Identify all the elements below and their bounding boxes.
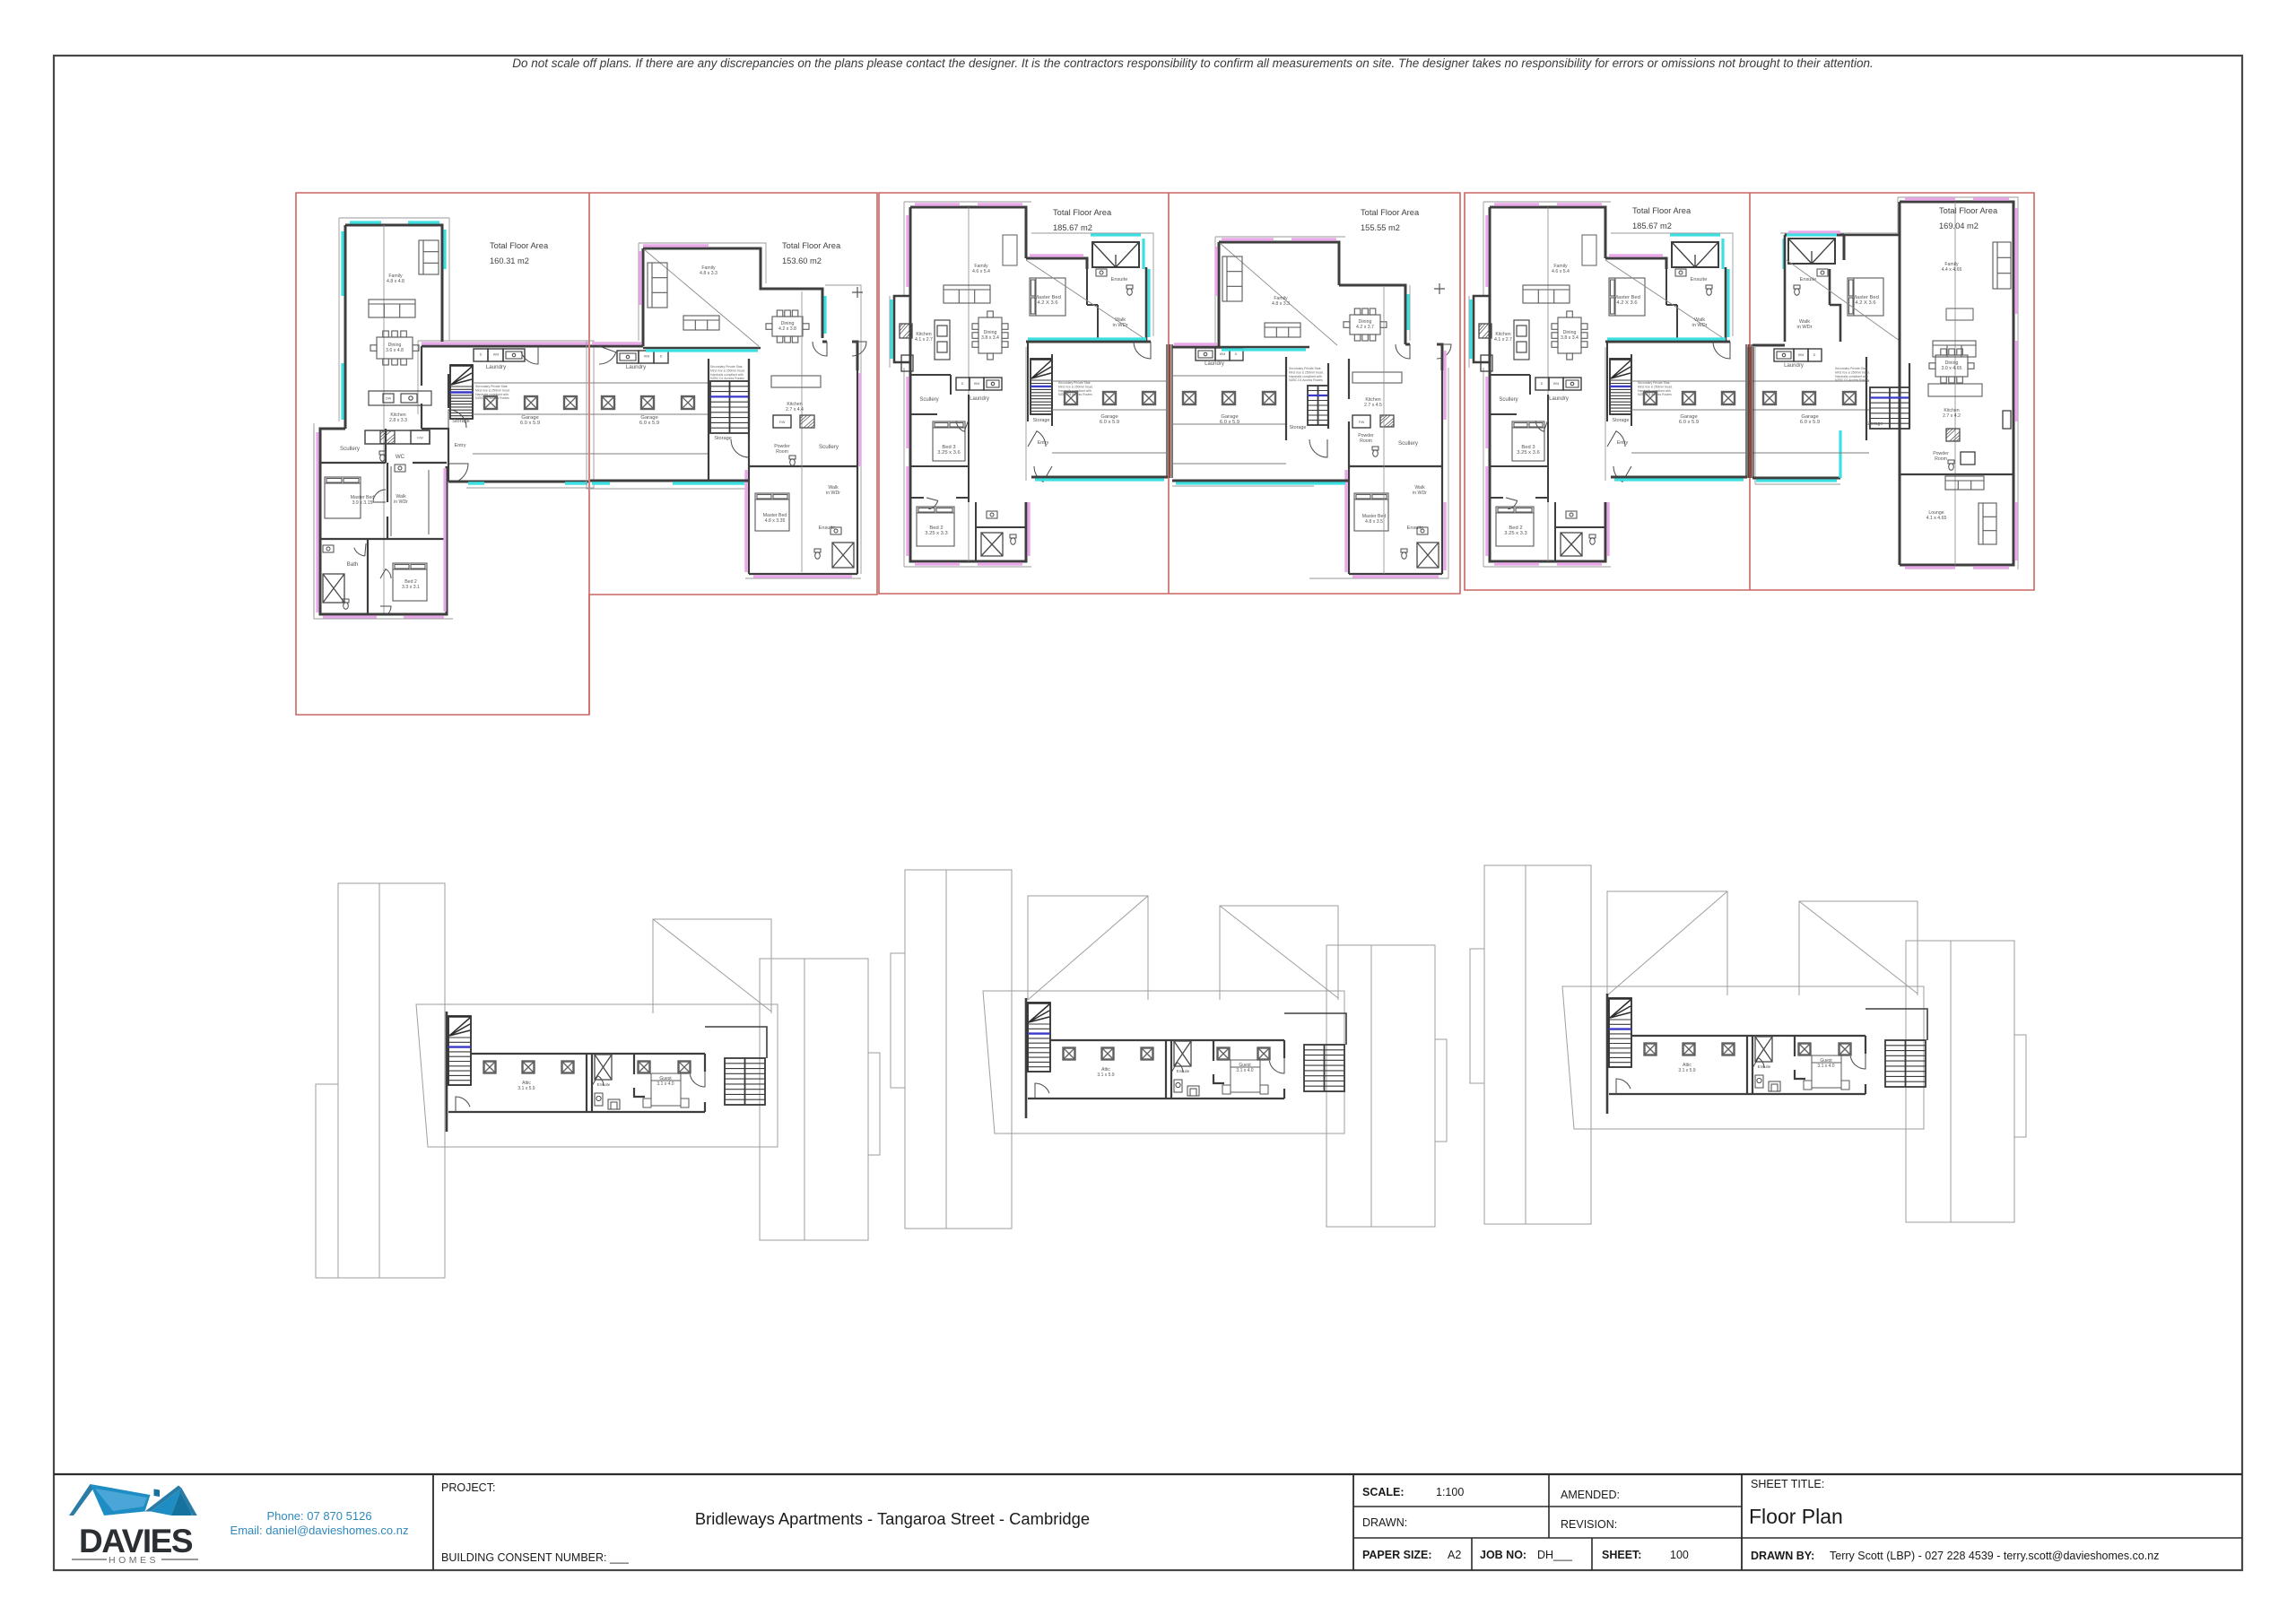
svg-text:6.0 x 5.9: 6.0 x 5.9 (639, 421, 659, 426)
svg-text:Ensuite: Ensuite (1111, 277, 1128, 282)
svg-text:PROJECT:: PROJECT: (441, 1481, 495, 1494)
svg-text:Kitchen: Kitchen (390, 413, 405, 418)
svg-text:3.1 x 5.9: 3.1 x 5.9 (517, 1086, 535, 1091)
svg-text:Family: Family (1274, 296, 1288, 301)
svg-text:3.9 x 3.15: 3.9 x 3.15 (352, 500, 373, 506)
svg-text:Family: Family (1944, 262, 1959, 267)
svg-text:4.4 x 4.65: 4.4 x 4.65 (1942, 267, 1962, 273)
svg-text:4.8 x 3.35: 4.8 x 3.35 (765, 518, 786, 524)
svg-text:Handrails compliant with: Handrails compliant with (1835, 375, 1868, 378)
svg-text:Kitchen: Kitchen (1944, 408, 1959, 413)
svg-text:in WDr: in WDr (1692, 323, 1707, 328)
svg-text:4.2 x 3.7: 4.2 x 3.7 (1356, 325, 1374, 330)
svg-text:HOMES: HOMES (109, 1555, 159, 1566)
svg-text:Total Floor Area: Total Floor Area (1053, 208, 1112, 217)
svg-text:Do not scale off plans. If the: Do not scale off plans. If there are any… (512, 56, 1874, 70)
svg-text:Master Bed: Master Bed (351, 495, 375, 500)
svg-text:Bed 2: Bed 2 (1509, 525, 1522, 531)
svg-text:Secondary Private Stair.: Secondary Private Stair. (1289, 367, 1321, 370)
svg-text:Family: Family (388, 274, 403, 279)
svg-text:Min2 rise & 250mm tread.: Min2 rise & 250mm tread. (1289, 370, 1324, 374)
svg-text:Bridleways Apartments - Tanga: Bridleways Apartments - Tangaroa Street … (695, 1509, 1090, 1528)
svg-text:185.67 m2: 185.67 m2 (1632, 221, 1672, 230)
svg-text:REVISION:: REVISION: (1561, 1518, 1617, 1531)
svg-text:Master Bed: Master Bed (1362, 514, 1387, 519)
svg-text:in WDr: in WDr (1413, 491, 1427, 496)
svg-text:NZBC D1 Access Routes: NZBC D1 Access Routes (1835, 378, 1869, 382)
svg-text:A2: A2 (1448, 1549, 1461, 1561)
svg-text:Storage: Storage (1033, 418, 1050, 423)
svg-text:Master Bed: Master Bed (1613, 295, 1640, 300)
svg-text:4.1 x 2.7: 4.1 x 2.7 (1494, 337, 1512, 343)
svg-text:Secondary Private Stair.: Secondary Private Stair. (1638, 381, 1670, 385)
svg-text:Scullery: Scullery (340, 446, 361, 452)
svg-text:Secondary Private Stair.: Secondary Private Stair. (1835, 367, 1867, 370)
svg-text:D: D (1235, 352, 1238, 356)
svg-text:NZBC D1 Access Routes: NZBC D1 Access Routes (710, 377, 744, 380)
svg-text:4.8 x 3.5: 4.8 x 3.5 (1365, 519, 1383, 525)
svg-text:6.0 x 5.9: 6.0 x 5.9 (520, 421, 540, 426)
svg-text:DW: DW (386, 397, 392, 401)
svg-text:Garage: Garage (1221, 414, 1238, 420)
svg-text:D: D (480, 353, 483, 357)
svg-text:Laundry: Laundry (626, 364, 647, 370)
svg-text:3.1 x 5.9: 3.1 x 5.9 (1678, 1068, 1695, 1073)
svg-text:Dining: Dining (1563, 330, 1577, 335)
svg-text:Family: Family (701, 265, 716, 271)
svg-text:Laundry: Laundry (1205, 361, 1224, 367)
svg-text:NZBC D1 Access Routes: NZBC D1 Access Routes (1289, 378, 1323, 382)
svg-text:Master Bed: Master Bed (1852, 295, 1879, 300)
svg-text:Storage: Storage (1613, 418, 1630, 423)
svg-text:1:100: 1:100 (1436, 1486, 1464, 1498)
svg-text:Walk: Walk (396, 494, 406, 499)
svg-text:4.2 X 3.6: 4.2 X 3.6 (1616, 300, 1637, 306)
svg-text:DH___: DH___ (1537, 1549, 1573, 1561)
svg-text:Family: Family (1553, 264, 1568, 269)
svg-text:in WDr: in WDr (826, 491, 840, 496)
svg-text:4.2 x 3.8: 4.2 x 3.8 (778, 326, 796, 332)
svg-text:Bath: Bath (347, 561, 359, 568)
svg-text:3.1 x 4.0: 3.1 x 4.0 (1817, 1064, 1834, 1069)
svg-text:Min2 rise & 250mm tread.: Min2 rise & 250mm tread. (710, 369, 745, 372)
svg-text:Garage: Garage (1801, 414, 1818, 420)
svg-text:Kitchen: Kitchen (916, 332, 931, 337)
svg-text:Phone: 07 870 5126: Phone: 07 870 5126 (266, 1509, 371, 1523)
svg-text:Dining: Dining (1359, 319, 1372, 325)
svg-text:Kitchen: Kitchen (1495, 332, 1510, 337)
svg-text:Kitchen: Kitchen (787, 402, 802, 407)
svg-text:F/W: F/W (1359, 421, 1365, 424)
svg-text:Walk: Walk (828, 485, 839, 491)
svg-text:D: D (961, 382, 964, 386)
svg-text:Total Floor Area: Total Floor Area (490, 241, 549, 250)
svg-text:AMENDED:: AMENDED: (1561, 1489, 1620, 1501)
svg-text:3.25 x 3.6: 3.25 x 3.6 (937, 450, 960, 456)
svg-text:Storage: Storage (1866, 421, 1883, 427)
svg-text:2.7 x 4.2: 2.7 x 4.2 (1943, 413, 1961, 419)
svg-text:Garage: Garage (1100, 414, 1118, 420)
svg-text:WM: WM (1798, 353, 1804, 357)
svg-text:Laundry: Laundry (1784, 363, 1804, 369)
svg-text:160.31 m2: 160.31 m2 (490, 256, 529, 265)
svg-text:2.7 x 4.4: 2.7 x 4.4 (786, 407, 804, 413)
svg-text:100: 100 (1670, 1549, 1689, 1561)
svg-text:BUILDING CONSENT NUMBER: ___: BUILDING CONSENT NUMBER: ___ (441, 1551, 630, 1564)
svg-text:Secondary Private Stair.: Secondary Private Stair. (475, 385, 508, 388)
svg-text:Dining: Dining (1945, 360, 1959, 366)
svg-text:3.1 x 4.0: 3.1 x 4.0 (1236, 1068, 1253, 1073)
svg-text:Garage: Garage (1680, 414, 1697, 420)
svg-text:F/W: F/W (417, 437, 423, 440)
svg-text:WM: WM (493, 353, 499, 357)
svg-text:Scullery: Scullery (819, 444, 839, 450)
svg-text:D: D (660, 355, 663, 359)
svg-text:Room: Room (1360, 439, 1372, 444)
svg-text:Ensuite: Ensuite (819, 525, 836, 531)
svg-text:Master Bed: Master Bed (763, 513, 787, 518)
svg-text:Bed 3: Bed 3 (1521, 445, 1535, 450)
svg-text:169.04 m2: 169.04 m2 (1939, 221, 1979, 230)
svg-text:Email: daniel@davieshomes.co.n: Email: daniel@davieshomes.co.nz (230, 1524, 409, 1537)
svg-text:Laundry: Laundry (970, 396, 989, 402)
svg-text:4.8 x 3.3: 4.8 x 3.3 (1272, 301, 1290, 307)
svg-text:WM: WM (1553, 382, 1559, 386)
svg-text:in WDr: in WDr (1112, 323, 1127, 328)
svg-text:WC: WC (396, 454, 405, 460)
svg-text:3.25 x 3.6: 3.25 x 3.6 (1517, 450, 1539, 456)
svg-text:Lounge: Lounge (1928, 510, 1944, 516)
svg-text:Entry: Entry (1617, 440, 1629, 446)
svg-text:3.6 x 4.8: 3.6 x 4.8 (386, 348, 404, 353)
svg-text:153.60 m2: 153.60 m2 (782, 256, 822, 265)
svg-text:4.8 x 3.3: 4.8 x 3.3 (700, 271, 717, 276)
svg-text:Family: Family (974, 264, 988, 269)
svg-text:4.1 x 2.7: 4.1 x 2.7 (915, 337, 933, 343)
svg-text:Floor Plan: Floor Plan (1749, 1505, 1843, 1528)
svg-text:SHEET:: SHEET: (1602, 1549, 1641, 1561)
svg-text:D: D (1541, 382, 1544, 386)
svg-text:Entry: Entry (1038, 440, 1049, 446)
svg-text:Storage: Storage (1290, 425, 1307, 430)
svg-text:WM: WM (1220, 352, 1225, 356)
svg-text:Handrails compliant with: Handrails compliant with (710, 373, 744, 377)
svg-text:Laundry: Laundry (1549, 396, 1569, 402)
svg-text:Min2 rise & 250mm tread.: Min2 rise & 250mm tread. (1058, 385, 1093, 388)
svg-text:Min2 rise & 250mm tread.: Min2 rise & 250mm tread. (1638, 385, 1673, 388)
svg-text:Dining: Dining (388, 343, 402, 348)
svg-text:D: D (1813, 353, 1816, 357)
svg-text:Bed 3: Bed 3 (942, 445, 955, 450)
svg-text:Total Floor Area: Total Floor Area (782, 241, 841, 250)
svg-text:6.0 x 5.9: 6.0 x 5.9 (1220, 420, 1239, 425)
svg-text:Scullery: Scullery (1398, 440, 1419, 447)
svg-text:in WDr: in WDr (394, 499, 408, 505)
svg-text:Scullery: Scullery (919, 397, 938, 403)
svg-text:Storage: Storage (714, 436, 732, 441)
svg-text:Dining: Dining (984, 330, 997, 335)
svg-text:Storage: Storage (452, 419, 470, 424)
svg-text:Min2 rise & 250mm tread.: Min2 rise & 250mm tread. (475, 388, 510, 392)
svg-text:DRAWN:: DRAWN: (1362, 1516, 1407, 1529)
svg-text:Scullery: Scullery (1499, 397, 1518, 403)
svg-text:4.1 x 4.65: 4.1 x 4.65 (1926, 516, 1947, 521)
svg-text:2.7 x 4.5: 2.7 x 4.5 (1364, 403, 1382, 408)
svg-text:Dining: Dining (781, 321, 795, 326)
svg-text:155.55 m2: 155.55 m2 (1361, 223, 1400, 232)
svg-text:Garage: Garage (640, 415, 657, 421)
svg-text:3.0 x 4.65: 3.0 x 4.65 (1942, 366, 1962, 371)
svg-text:in WDr: in WDr (1796, 325, 1812, 330)
svg-text:Master Bed: Master Bed (1034, 295, 1061, 300)
svg-text:Laundry: Laundry (486, 364, 507, 370)
svg-text:Entry: Entry (454, 443, 465, 448)
svg-text:DRAWN BY:: DRAWN BY: (1751, 1550, 1814, 1562)
svg-text:Room: Room (1935, 456, 1947, 462)
svg-text:6.0 x 5.9: 6.0 x 5.9 (1800, 420, 1820, 425)
svg-text:3.8 x 3.4: 3.8 x 3.4 (981, 335, 999, 341)
svg-text:3.1 x 4.0: 3.1 x 4.0 (657, 1081, 674, 1087)
svg-text:Min2 rise & 250mm tread.: Min2 rise & 250mm tread. (1835, 370, 1870, 374)
svg-text:Kitchen: Kitchen (1365, 397, 1380, 403)
svg-text:3.25 x 3.3: 3.25 x 3.3 (1504, 531, 1526, 536)
svg-text:4.6 x 5.4: 4.6 x 5.4 (972, 269, 990, 274)
svg-text:3.3 x 3.1: 3.3 x 3.1 (402, 585, 420, 590)
svg-text:Walk: Walk (1799, 319, 1810, 325)
svg-text:Total Floor Area: Total Floor Area (1939, 206, 1998, 215)
svg-text:Ensuite: Ensuite (1691, 277, 1708, 282)
svg-text:Garage: Garage (521, 415, 538, 421)
svg-text:3.1 x 5.9: 3.1 x 5.9 (1097, 1073, 1114, 1078)
svg-text:SCALE:: SCALE: (1362, 1486, 1405, 1498)
svg-text:6.0 x 5.9: 6.0 x 5.9 (1679, 420, 1699, 425)
svg-text:WM: WM (644, 355, 649, 359)
svg-text:Total Floor Area: Total Floor Area (1632, 206, 1692, 215)
svg-text:DAVIES: DAVIES (79, 1523, 193, 1559)
svg-text:4.6 x 5.4: 4.6 x 5.4 (1552, 269, 1570, 274)
svg-text:F/W: F/W (779, 421, 786, 424)
svg-text:Terry Scott (LBP) - 027 228 45: Terry Scott (LBP) - 027 228 4539 - terry… (1830, 1550, 2159, 1562)
svg-text:6.0 x 5.9: 6.0 x 5.9 (1100, 420, 1119, 425)
svg-text:Secondary Private Stair.: Secondary Private Stair. (710, 365, 743, 369)
svg-text:3.25 x 3.3: 3.25 x 3.3 (925, 531, 947, 536)
svg-text:Handrails compliant with: Handrails compliant with (1289, 375, 1322, 378)
svg-text:WM: WM (974, 382, 979, 386)
svg-text:3.8 x 3.4: 3.8 x 3.4 (1561, 335, 1578, 341)
svg-text:PAPER SIZE:: PAPER SIZE: (1362, 1549, 1432, 1561)
svg-text:185.67 m2: 185.67 m2 (1053, 223, 1092, 232)
svg-text:SHEET TITLE:: SHEET TITLE: (1751, 1478, 1824, 1490)
svg-text:Secondary Private Stair.: Secondary Private Stair. (1058, 381, 1091, 385)
svg-text:Room: Room (776, 449, 788, 455)
svg-text:Total Floor Area: Total Floor Area (1361, 208, 1420, 217)
svg-text:4.2 X 3.6: 4.2 X 3.6 (1037, 300, 1057, 306)
svg-text:Bed 2: Bed 2 (929, 525, 943, 531)
svg-text:4.8 x 4.8: 4.8 x 4.8 (387, 279, 404, 284)
svg-text:JOB NO:: JOB NO: (1480, 1549, 1526, 1561)
svg-text:Walk: Walk (1414, 485, 1425, 491)
svg-text:2.8 x 3.3: 2.8 x 3.3 (389, 418, 407, 423)
svg-text:4.2 X 3.6: 4.2 X 3.6 (1855, 300, 1875, 306)
svg-text:Bed 2: Bed 2 (404, 579, 417, 585)
